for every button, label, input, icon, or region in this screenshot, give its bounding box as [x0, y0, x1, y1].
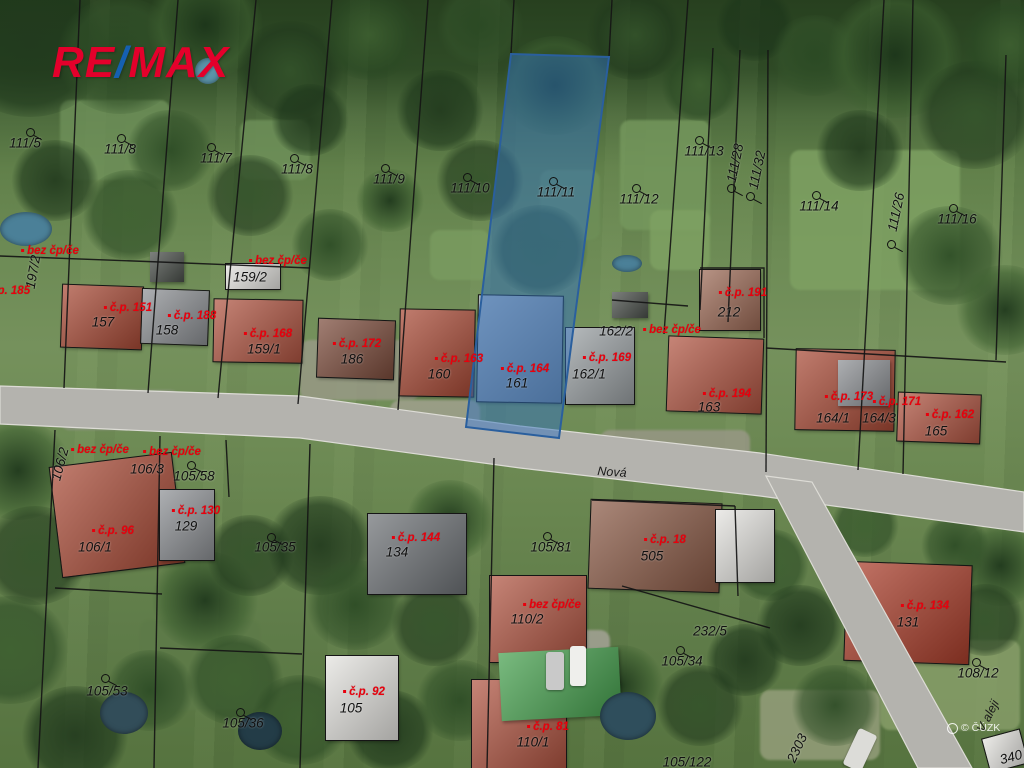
house-point-dot-icon [703, 392, 706, 395]
house-number-label: č.p. 171 [873, 396, 921, 408]
house-point-dot-icon [825, 395, 828, 398]
house-point-dot-icon [523, 603, 526, 606]
parcel-number-label: 164/3 [862, 411, 896, 426]
house-number-label: bez čp/če [71, 444, 129, 456]
parcel-number-label: 111/8 [281, 162, 313, 177]
parcel-number-label: 111/13 [684, 144, 723, 159]
parcel-number-label: 105 [340, 701, 363, 716]
parcel-point-marker-icon [267, 533, 276, 542]
marker-tail [754, 199, 762, 204]
parcel-number-label: 162/1 [572, 367, 606, 382]
house-number-text: č.p. 96 [98, 525, 134, 537]
house-number-text: č.p. 164 [507, 363, 549, 375]
parcel-number-label: 111/26 [885, 191, 908, 233]
house-point-dot-icon [392, 536, 395, 539]
house-number-text: č.p. 130 [178, 505, 220, 517]
house-number-label: č.p. 163 [435, 353, 483, 365]
parcel-number-label: 106/3 [130, 462, 164, 477]
house-number-label: č.p. 185 [0, 285, 30, 297]
house-number-text: bez čp/če [255, 255, 307, 267]
parcel-point-marker-icon [972, 658, 981, 667]
house-point-dot-icon [143, 450, 146, 453]
house-number-text: bez čp/če [77, 444, 129, 456]
parcel-number-label: 159/1 [247, 342, 281, 357]
house-point-dot-icon [873, 400, 876, 403]
house-number-label: č.p. 151 [104, 302, 152, 314]
parcel-number-label: 106/1 [78, 540, 112, 555]
house-number-label: č.p. 169 [583, 352, 631, 364]
house-number-text: č.p. 134 [907, 600, 949, 612]
remax-logo: RE/MAX [52, 38, 229, 88]
parcel-number-label: 164/1 [816, 411, 850, 426]
parcel-number-label: 105/34 [661, 654, 702, 669]
parcel-number-label: 129 [175, 519, 198, 534]
parcel-number-label: 111/12 [619, 192, 658, 207]
parcel-number-label: 111/7 [200, 151, 232, 166]
parcel-point-marker-icon [695, 136, 704, 145]
house-number-text: č.p. 194 [709, 388, 751, 400]
house-number-label: č.p. 96 [92, 525, 134, 537]
house-number-label: č.p. 164 [501, 363, 549, 375]
house-number-text: č.p. 18 [650, 534, 686, 546]
parcel-point-marker-icon [101, 674, 110, 683]
parcel-point-marker-icon [812, 191, 821, 200]
house-point-dot-icon [333, 342, 336, 345]
parcel-number-label: 108/12 [957, 666, 998, 681]
house-number-label: č.p. 134 [901, 600, 949, 612]
parcel-number-label: 212 [718, 305, 741, 320]
parcel-number-label: 111/28 [724, 142, 747, 184]
parcel-number-label: 160 [428, 367, 451, 382]
parcel-number-label: 340 [998, 747, 1024, 767]
parcel-number-label: 106/2 [48, 446, 71, 483]
cuzk-globe-icon [947, 723, 958, 734]
parcel-number-label: 110/2 [511, 612, 544, 627]
house-number-text: bez čp/če [529, 599, 581, 611]
parcel-number-label: 105/35 [254, 540, 295, 555]
parcel-number-label: 134 [386, 545, 409, 560]
parcel-point-marker-icon [887, 240, 896, 249]
parcel-number-label: 505 [641, 549, 664, 564]
cuzk-watermark-text: © ČÚZK [961, 722, 1000, 734]
parcel-number-label: 111/32 [746, 149, 769, 191]
house-point-dot-icon [501, 367, 504, 370]
parcel-number-label: 105/53 [86, 684, 127, 699]
parcel-point-marker-icon [676, 646, 685, 655]
house-number-text: č.p. 162 [932, 409, 974, 421]
house-number-text: bez čp/če [649, 324, 701, 336]
house-number-label: č.p. 172 [333, 338, 381, 350]
parcel-point-marker-icon [949, 204, 958, 213]
house-number-label: č.p. 173 [825, 391, 873, 403]
parcel-number-label: 162/2 [599, 324, 633, 339]
parcel-number-label: 186 [341, 352, 364, 367]
parcel-number-label: 165 [925, 424, 948, 439]
house-number-text: č.p. 169 [589, 352, 631, 364]
house-number-label: bez čp/če [143, 446, 201, 458]
house-number-text: č.p. 191 [725, 287, 767, 299]
parcel-number-label: 159/2 [233, 270, 267, 285]
house-number-label: č.p. 188 [168, 310, 216, 322]
house-number-text: č.p. 188 [174, 310, 216, 322]
parcel-number-label: 105/122 [663, 755, 712, 768]
house-number-label: č.p. 130 [172, 505, 220, 517]
parcel-number-label: 110/1 [517, 735, 550, 750]
house-point-dot-icon [644, 538, 647, 541]
parcel-point-marker-icon [187, 461, 196, 470]
house-number-label: bez čp/če [21, 245, 79, 257]
house-number-text: č.p. 81 [533, 721, 569, 733]
parcel-point-marker-icon [727, 184, 736, 193]
house-number-text: č.p. 163 [441, 353, 483, 365]
house-number-label: č.p. 194 [703, 388, 751, 400]
parcel-point-marker-icon [543, 532, 552, 541]
house-number-text: bez čp/če [149, 446, 201, 458]
house-point-dot-icon [249, 259, 252, 262]
house-number-label: č.p. 18 [644, 534, 686, 546]
parcel-point-marker-icon [463, 173, 472, 182]
house-point-dot-icon [719, 291, 722, 294]
parcel-number-label: 111/11 [537, 185, 575, 200]
house-number-label: č.p. 162 [926, 409, 974, 421]
house-number-text: č.p. 168 [250, 328, 292, 340]
house-point-dot-icon [104, 306, 107, 309]
parcel-number-label: 111/14 [799, 199, 838, 214]
marker-tail [895, 247, 903, 252]
parcel-number-label: 161 [506, 376, 529, 391]
parcel-point-marker-icon [746, 192, 755, 201]
house-number-text: č.p. 185 [0, 285, 30, 297]
house-point-dot-icon [21, 249, 24, 252]
house-number-text: č.p. 172 [339, 338, 381, 350]
parcel-point-marker-icon [117, 134, 126, 143]
house-number-text: bez čp/če [27, 245, 79, 257]
house-point-dot-icon [901, 604, 904, 607]
parcel-point-marker-icon [26, 128, 35, 137]
parcel-number-label: 111/10 [450, 181, 489, 196]
parcel-number-label: 131 [897, 615, 920, 630]
house-number-label: bez čp/če [523, 599, 581, 611]
parcel-number-label: 157 [92, 315, 115, 330]
house-number-label: č.p. 81 [527, 721, 569, 733]
house-number-text: č.p. 171 [879, 396, 921, 408]
house-number-text: č.p. 151 [110, 302, 152, 314]
parcel-number-label: 105/81 [530, 540, 571, 555]
cadastral-map-screenshot: 111/5111/8111/7111/8111/9111/10111/11111… [0, 0, 1024, 768]
logo-re: RE [52, 38, 115, 87]
parcel-point-marker-icon [236, 708, 245, 717]
house-point-dot-icon [527, 725, 530, 728]
house-number-label: č.p. 144 [392, 532, 440, 544]
logo-slash-icon: / [115, 38, 128, 87]
parcel-number-label: 232/5 [693, 624, 727, 639]
house-point-dot-icon [926, 413, 929, 416]
house-number-label: bez čp/če [249, 255, 307, 267]
house-point-dot-icon [172, 509, 175, 512]
parcel-number-label: 105/36 [222, 716, 263, 731]
house-number-text: č.p. 173 [831, 391, 873, 403]
parcel-number-label: 111/9 [373, 172, 405, 187]
house-point-dot-icon [435, 357, 438, 360]
parcel-point-marker-icon [381, 164, 390, 173]
house-point-dot-icon [168, 314, 171, 317]
house-point-dot-icon [244, 332, 247, 335]
parcel-number-label: 111/16 [937, 212, 976, 227]
street-name-label: Nová [597, 464, 627, 480]
parcel-number-label: 158 [156, 323, 179, 338]
logo-max: MAX [128, 38, 229, 87]
house-number-label: bez čp/če [643, 324, 701, 336]
house-number-text: č.p. 92 [349, 686, 385, 698]
house-number-text: č.p. 144 [398, 532, 440, 544]
house-point-dot-icon [92, 529, 95, 532]
house-number-label: č.p. 92 [343, 686, 385, 698]
parcel-number-label: 2303 [784, 731, 810, 765]
house-number-label: č.p. 168 [244, 328, 292, 340]
parcel-point-marker-icon [549, 177, 558, 186]
label-layer: 111/5111/8111/7111/8111/9111/10111/11111… [0, 0, 1024, 768]
parcel-point-marker-icon [207, 143, 216, 152]
house-point-dot-icon [643, 328, 646, 331]
house-point-dot-icon [71, 448, 74, 451]
parcel-point-marker-icon [632, 184, 641, 193]
house-point-dot-icon [583, 356, 586, 359]
parcel-number-label: 105/58 [173, 469, 214, 484]
cuzk-watermark: © ČÚZK [947, 722, 1000, 734]
house-number-label: č.p. 191 [719, 287, 767, 299]
parcel-point-marker-icon [290, 154, 299, 163]
house-point-dot-icon [343, 690, 346, 693]
marker-tail [735, 191, 743, 196]
parcel-number-label: 163 [698, 400, 721, 415]
